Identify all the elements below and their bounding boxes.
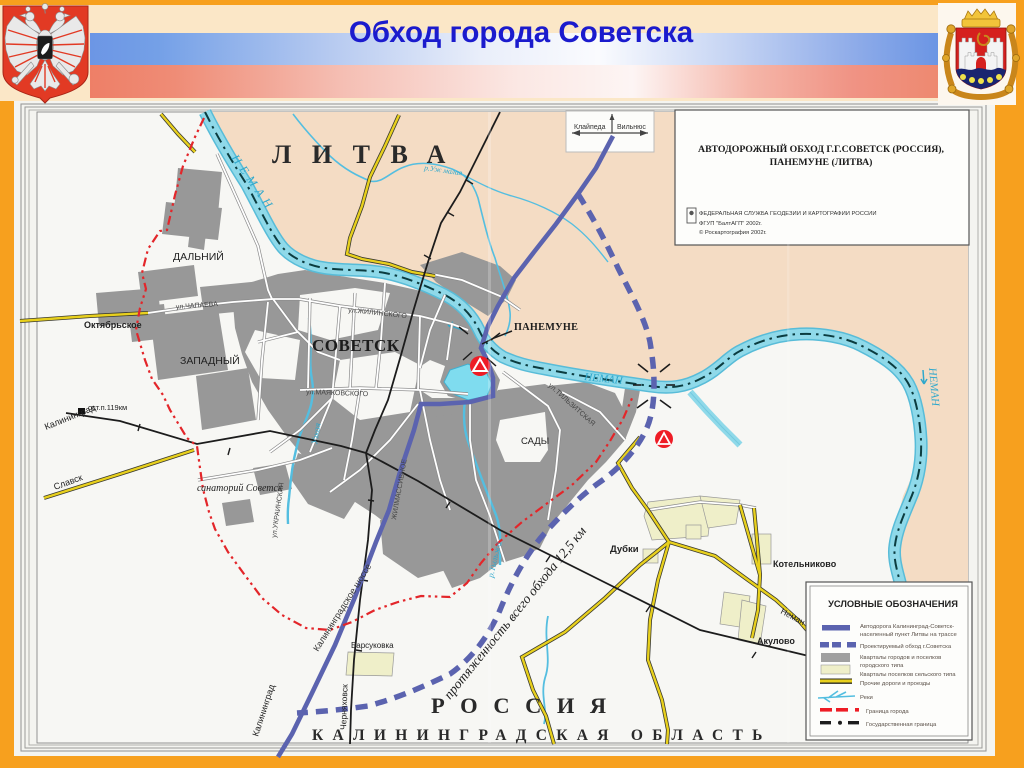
svg-text:Кварталы поселков сельского т: Кварталы поселков сельского типа [860,672,956,678]
svg-text:Октябрьское: Октябрьское [84,320,142,330]
svg-text:ПАНЕМУНЕ: ПАНЕМУНЕ [514,322,578,333]
svg-text:ЗАПАДНЫЙ: ЗАПАДНЫЙ [180,354,240,367]
svg-text:Государственная граница: Государственная граница [866,722,937,728]
svg-text:САДЫ: САДЫ [521,436,549,447]
svg-text:Вильнюс: Вильнюс [617,124,646,131]
svg-text:Котельниково: Котельниково [773,559,837,569]
svg-text:населенный пункт Литвы на трас: населенный пункт Литвы на трассе [860,631,957,638]
svg-text:городского типа: городского типа [860,663,904,669]
svg-text:Автодорога Калининград-Советск: Автодорога Калининград-Советск- [860,624,954,630]
svg-text:ФГУП "БалтАГП" 2002г.: ФГУП "БалтАГП" 2002г. [699,221,762,227]
svg-text:Прочие дороги и проезды: Прочие дороги и проезды [860,681,930,687]
svg-text:РОССИЯ: РОССИЯ [431,693,622,718]
svg-text:© Роскартография 2002г.: © Роскартография 2002г. [699,229,767,236]
svg-text:санаторий Советск: санаторий Советск [197,483,283,494]
svg-text:Черняховск: Черняховск [338,684,350,730]
svg-text:АВТОДОРОЖНЫЙ ОБХОД Г.Г.СОВЕТСК: АВТОДОРОЖНЫЙ ОБХОД Г.Г.СОВЕТСК (РОССИЯ), [698,143,945,155]
svg-text:Реки: Реки [860,695,873,701]
svg-text:КАЛИНИНГРАДСКАЯ ОБЛАСТЬ: КАЛИНИНГРАДСКАЯ ОБЛАСТЬ [312,727,772,744]
svg-text:УСЛОВНЫЕ ОБОЗНАЧЕНИЯ: УСЛОВНЫЕ ОБОЗНАЧЕНИЯ [828,599,958,609]
svg-text:Акулово: Акулово [757,636,795,646]
svg-text:Барсуковка: Барсуковка [351,641,394,650]
svg-text:Граница города: Граница города [866,709,909,715]
svg-text:СОВЕТСК: СОВЕТСК [312,336,400,355]
svg-text:Дубки: Дубки [610,544,639,555]
svg-text:ДАЛЬНИЙ: ДАЛЬНИЙ [173,250,224,263]
svg-text:Проектируемый обход г.Советска: Проектируемый обход г.Советска [860,643,952,650]
svg-text:Клайпеда: Клайпеда [574,123,606,131]
svg-text:Кварталы городов и поселков: Кварталы городов и поселков [860,655,941,661]
svg-text:Обход города Советска: Обход города Советска [349,16,694,49]
svg-text:ПАНЕМУНЕ (ЛИТВА): ПАНЕМУНЕ (ЛИТВА) [770,157,873,168]
